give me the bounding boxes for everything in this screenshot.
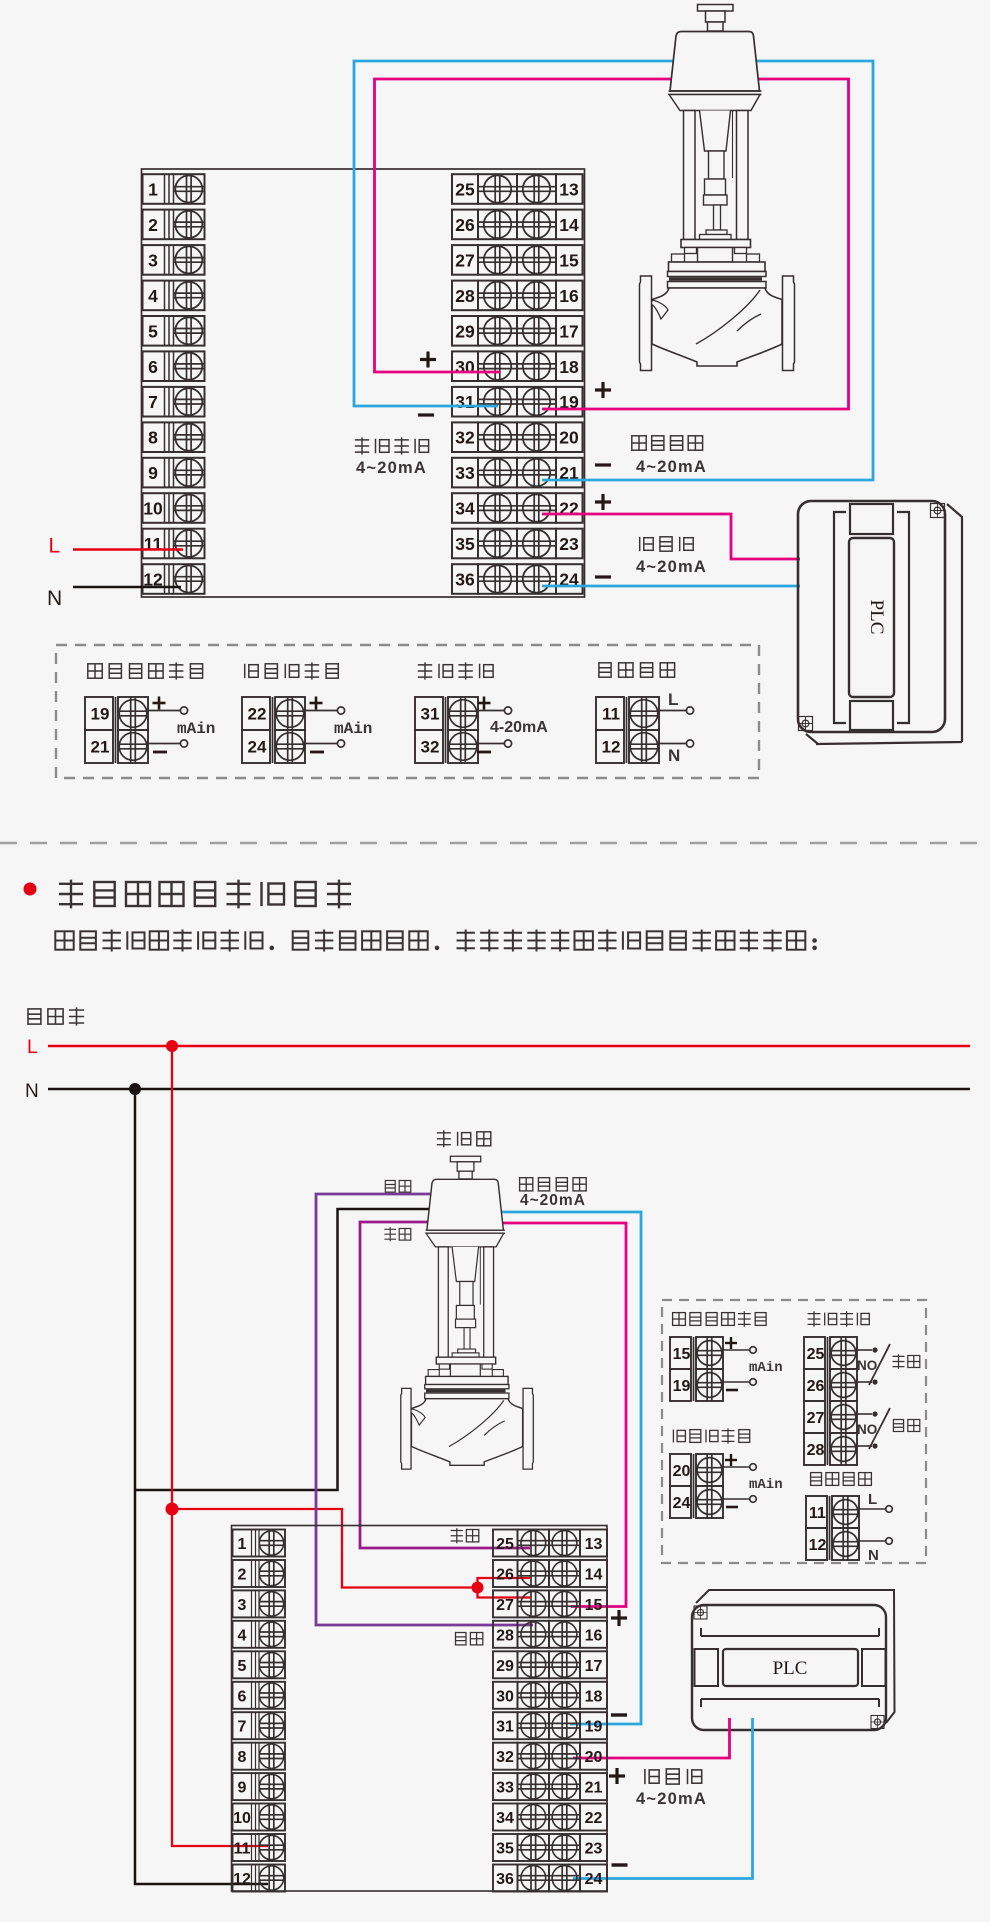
- svg-text:22: 22: [248, 705, 267, 724]
- svg-text:4: 4: [148, 286, 158, 306]
- svg-text:12: 12: [809, 1537, 827, 1554]
- svg-text:13: 13: [559, 180, 579, 200]
- svg-text:9: 9: [238, 1780, 247, 1797]
- svg-text:31: 31: [455, 392, 475, 412]
- svg-text:L: L: [49, 535, 61, 558]
- svg-text:27: 27: [807, 1410, 825, 1427]
- svg-text:2: 2: [148, 215, 158, 235]
- svg-text:L: L: [668, 690, 678, 709]
- svg-text:N: N: [668, 746, 680, 765]
- svg-text:25: 25: [455, 180, 475, 200]
- svg-text:11: 11: [234, 1841, 251, 1858]
- svg-text:4: 4: [238, 1627, 247, 1644]
- svg-text:30: 30: [496, 1688, 514, 1705]
- svg-text:22: 22: [559, 499, 579, 519]
- svg-text:11: 11: [809, 1505, 826, 1522]
- svg-text:mAin: mAin: [177, 720, 215, 738]
- svg-text:18: 18: [585, 1688, 603, 1705]
- svg-text:14: 14: [559, 215, 579, 235]
- svg-text:35: 35: [455, 534, 475, 554]
- svg-text:15: 15: [559, 250, 579, 270]
- svg-text:2: 2: [238, 1566, 247, 1583]
- svg-text:33: 33: [496, 1780, 514, 1797]
- svg-text:19: 19: [673, 1378, 691, 1395]
- svg-text:L: L: [27, 1037, 38, 1058]
- svg-text:N: N: [868, 1547, 879, 1564]
- svg-text:27: 27: [455, 250, 474, 270]
- svg-text:36: 36: [455, 569, 475, 589]
- svg-text:13: 13: [585, 1536, 603, 1553]
- svg-text:20: 20: [673, 1463, 691, 1480]
- svg-text:20: 20: [559, 428, 579, 448]
- svg-text:1: 1: [148, 180, 158, 200]
- svg-text:33: 33: [455, 463, 475, 483]
- svg-text:21: 21: [91, 738, 110, 757]
- svg-text:6: 6: [148, 357, 158, 377]
- svg-text:30: 30: [455, 357, 475, 377]
- svg-text:34: 34: [455, 499, 475, 519]
- svg-text:19: 19: [585, 1719, 603, 1736]
- svg-text:NO: NO: [857, 1422, 877, 1437]
- svg-text:19: 19: [91, 705, 110, 724]
- svg-text:15: 15: [585, 1597, 603, 1614]
- svg-text:8: 8: [238, 1749, 247, 1766]
- svg-text:7: 7: [238, 1719, 247, 1736]
- svg-text:4~20mA: 4~20mA: [636, 558, 707, 576]
- svg-text:11: 11: [602, 705, 620, 724]
- svg-text:29: 29: [455, 321, 475, 341]
- svg-text:mAin: mAin: [334, 720, 372, 738]
- svg-text:1: 1: [238, 1536, 247, 1553]
- svg-text:5: 5: [238, 1658, 247, 1675]
- svg-text:22: 22: [585, 1810, 603, 1827]
- svg-text:21: 21: [585, 1780, 603, 1797]
- svg-text:5: 5: [148, 321, 158, 341]
- svg-text:18: 18: [559, 357, 579, 377]
- svg-text:31: 31: [496, 1719, 514, 1736]
- svg-text:4~20mA: 4~20mA: [636, 458, 707, 476]
- svg-text:28: 28: [455, 286, 475, 306]
- svg-text:34: 34: [496, 1810, 514, 1827]
- svg-text:23: 23: [559, 534, 579, 554]
- svg-text:14: 14: [585, 1566, 603, 1583]
- svg-text:4~20mA: 4~20mA: [636, 1790, 707, 1808]
- svg-text:4-20mA: 4-20mA: [490, 719, 548, 736]
- svg-text:11: 11: [144, 534, 163, 554]
- svg-text:7: 7: [148, 392, 158, 412]
- svg-text:24: 24: [248, 738, 267, 757]
- svg-text:16: 16: [559, 286, 579, 306]
- svg-text:4~20mA: 4~20mA: [356, 459, 427, 477]
- svg-text:26: 26: [455, 215, 475, 235]
- svg-text:8: 8: [148, 428, 158, 448]
- svg-text:9: 9: [148, 463, 158, 483]
- svg-text:28: 28: [496, 1627, 514, 1644]
- svg-text:23: 23: [585, 1841, 603, 1858]
- svg-text:32: 32: [421, 738, 440, 757]
- svg-text:17: 17: [585, 1658, 603, 1675]
- svg-text:3: 3: [148, 250, 158, 270]
- svg-text:15: 15: [673, 1346, 691, 1363]
- svg-text:mAin: mAin: [749, 1360, 783, 1376]
- svg-text:25: 25: [807, 1346, 825, 1363]
- svg-text:25: 25: [496, 1536, 514, 1553]
- svg-text:6: 6: [238, 1688, 247, 1705]
- svg-text:24: 24: [585, 1871, 603, 1888]
- svg-text:31: 31: [421, 705, 440, 724]
- svg-text:12: 12: [602, 738, 621, 757]
- svg-text:26: 26: [496, 1566, 514, 1583]
- svg-text:35: 35: [496, 1841, 514, 1858]
- svg-text:mAin: mAin: [749, 1477, 783, 1493]
- svg-text:27: 27: [496, 1597, 514, 1614]
- svg-text:PLC: PLC: [773, 1658, 808, 1679]
- svg-text:28: 28: [807, 1442, 825, 1459]
- svg-text:12: 12: [233, 1871, 251, 1888]
- svg-text:29: 29: [496, 1658, 514, 1675]
- svg-text:32: 32: [455, 428, 475, 448]
- svg-text:PLC: PLC: [866, 600, 887, 635]
- svg-text:N: N: [47, 587, 62, 610]
- svg-text:26: 26: [807, 1378, 825, 1395]
- svg-text:32: 32: [496, 1749, 514, 1766]
- svg-text:3: 3: [238, 1597, 247, 1614]
- svg-text:10: 10: [233, 1810, 251, 1827]
- svg-text:10: 10: [143, 499, 163, 519]
- svg-text:N: N: [25, 1081, 39, 1102]
- svg-text:20: 20: [585, 1749, 603, 1766]
- svg-text:4~20mA: 4~20mA: [520, 1192, 586, 1209]
- svg-text:36: 36: [496, 1871, 514, 1888]
- svg-text:NO: NO: [857, 1358, 877, 1373]
- svg-text:17: 17: [559, 321, 578, 341]
- svg-text:L: L: [868, 1491, 877, 1508]
- svg-text:16: 16: [585, 1627, 603, 1644]
- svg-text:24: 24: [673, 1495, 691, 1512]
